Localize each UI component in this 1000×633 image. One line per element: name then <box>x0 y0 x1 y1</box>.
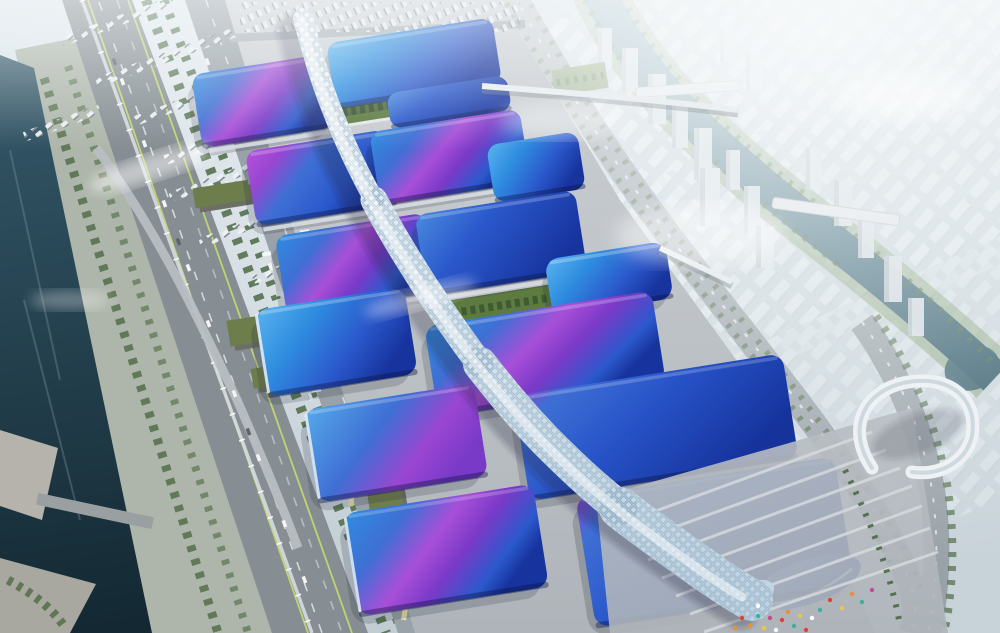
aerial-rendering <box>0 0 1000 633</box>
top-haze-band <box>0 0 1000 150</box>
